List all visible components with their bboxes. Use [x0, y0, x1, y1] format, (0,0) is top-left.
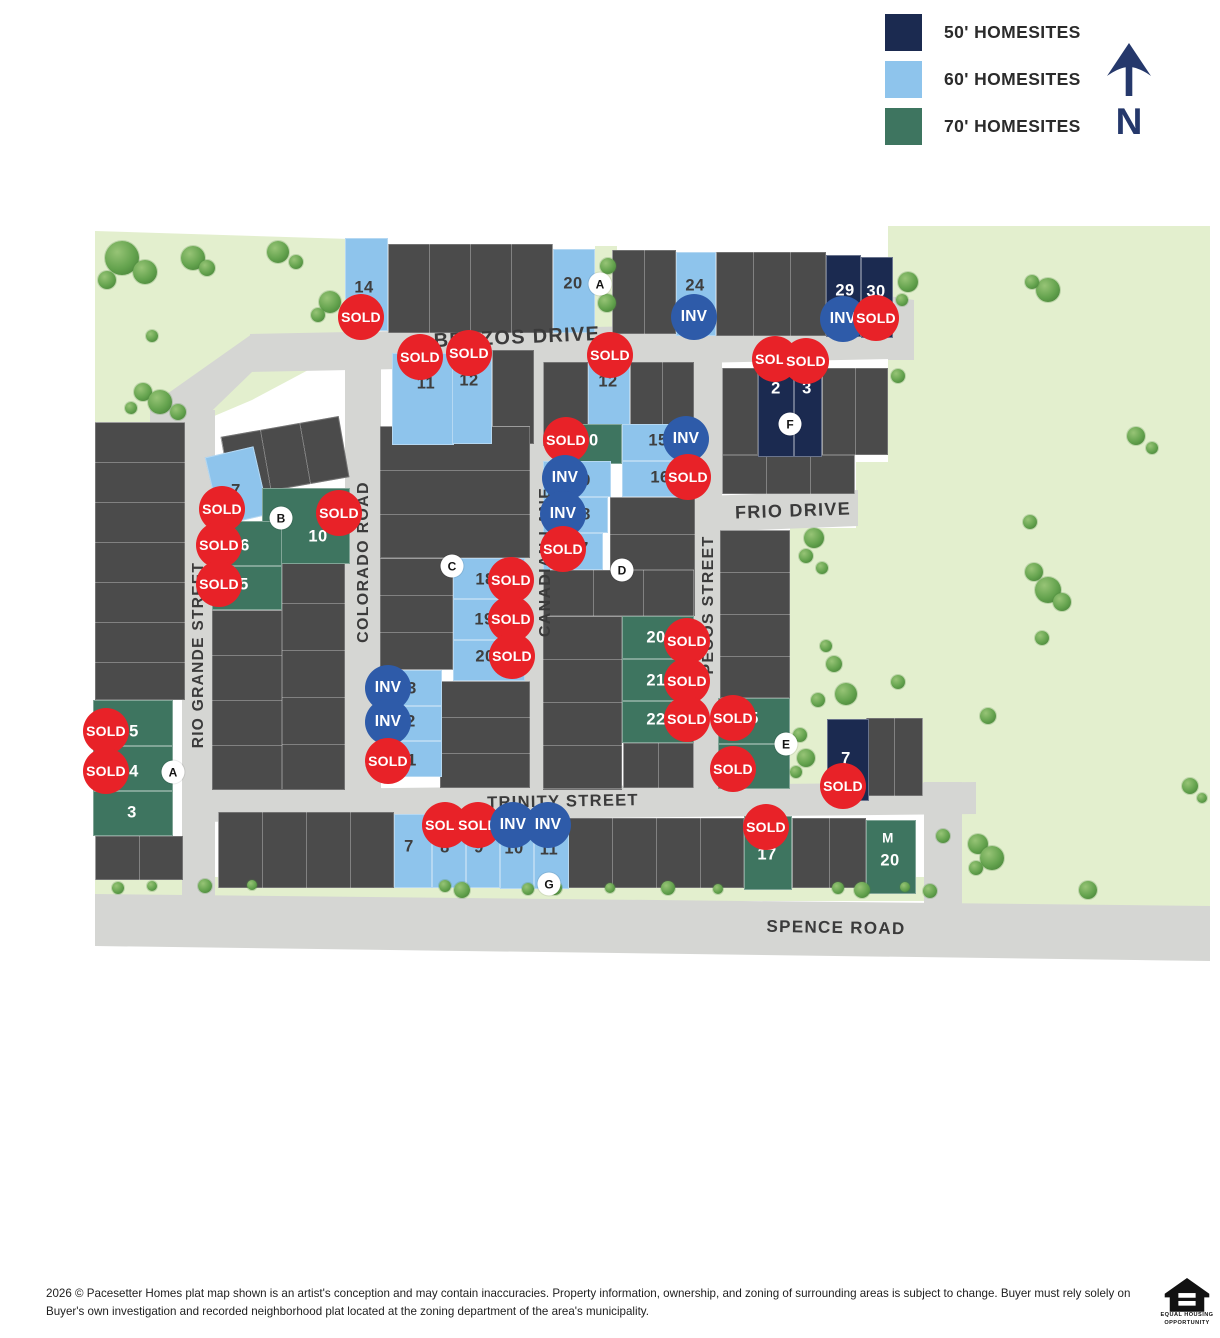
compass: N — [1100, 42, 1158, 138]
eho-text-line-2: OPPORTUNITY — [1158, 1320, 1216, 1328]
lot-block — [722, 455, 855, 494]
tree-icon — [891, 675, 905, 689]
tree-icon — [936, 829, 950, 843]
eho-text-line-1: EQUAL HOUSING — [1158, 1312, 1216, 1320]
equal-housing-house-icon — [1164, 1277, 1210, 1312]
map-marker-F: F — [779, 413, 802, 436]
sold-badge: SOLD — [83, 748, 129, 794]
tree-icon — [980, 708, 996, 724]
lot-number: 21 — [646, 672, 665, 691]
lot-block — [716, 252, 826, 336]
inv-badge: INV — [671, 294, 717, 340]
legend-label-50: 50' HOMESITES — [944, 22, 1081, 43]
sold-badge: SOLD — [316, 490, 362, 536]
north-arrow-icon — [1103, 42, 1155, 98]
lot-number: 20 — [563, 275, 582, 294]
tree-icon — [790, 766, 802, 778]
compass-n-label: N — [1100, 105, 1158, 138]
tree-icon — [891, 369, 905, 383]
lot-block — [792, 818, 866, 888]
lot-block — [720, 530, 790, 698]
legend: 50' HOMESITES 60' HOMESITES 70' HOMESITE… — [885, 14, 1081, 155]
tree-icon — [820, 640, 832, 652]
legend-item-60: 60' HOMESITES — [885, 61, 1081, 98]
lot-model-label: M — [882, 831, 894, 846]
lot-block — [822, 368, 888, 455]
lot-block — [282, 556, 345, 790]
sold-badge: SOLD — [338, 294, 384, 340]
sold-badge: SOLD — [489, 633, 535, 679]
lot-block — [440, 681, 530, 788]
sold-badge: SOLD — [664, 696, 710, 742]
sold-badge: SOLD — [196, 561, 242, 607]
tree-icon — [170, 404, 186, 420]
sold-badge: SOLD — [665, 454, 711, 500]
lot-block — [722, 368, 758, 455]
legend-label-60: 60' HOMESITES — [944, 69, 1081, 90]
lot-block — [388, 244, 553, 333]
site-map: BRAZOS DRIVE FRIO DRIVE TRINITY STREET S… — [0, 0, 1220, 1338]
tree-icon — [713, 884, 723, 894]
lot-block — [623, 743, 694, 788]
plat-map-page: 50' HOMESITES 60' HOMESITES 70' HOMESITE… — [0, 0, 1220, 1338]
tree-icon — [1023, 515, 1037, 529]
lot-number: 5 — [129, 723, 139, 742]
lot-block — [95, 422, 185, 700]
legend-swatch-70-icon — [885, 108, 922, 145]
disclaimer-line-2: Buyer's own investigation and recorded n… — [46, 1303, 1174, 1321]
tree-icon — [854, 882, 870, 898]
equal-housing-logo: EQUAL HOUSING OPPORTUNITY — [1158, 1277, 1216, 1327]
tree-icon — [896, 294, 908, 306]
tree-icon — [923, 884, 937, 898]
sold-badge: SOLD — [446, 330, 492, 376]
lot-block — [866, 718, 923, 796]
tree-icon — [454, 882, 470, 898]
tree-icon — [147, 881, 157, 891]
sold-badge: SOLD — [783, 338, 829, 384]
legend-item-70: 70' HOMESITES — [885, 108, 1081, 145]
sold-badge: SOLD — [820, 763, 866, 809]
tree-icon — [980, 846, 1004, 870]
lot-block — [568, 818, 744, 888]
lot-block — [212, 610, 282, 790]
tree-icon — [267, 241, 289, 263]
tree-icon — [311, 308, 325, 322]
lot-number: 3 — [127, 804, 137, 823]
inv-badge: INV — [525, 802, 571, 848]
tree-icon — [1036, 278, 1060, 302]
lot-block — [218, 812, 394, 888]
sold-badge: SOLD — [743, 804, 789, 850]
tree-icon — [289, 255, 303, 269]
tree-icon — [1197, 793, 1207, 803]
sold-badge: SOLD — [853, 295, 899, 341]
street-label-frio-drive: FRIO DRIVE — [735, 498, 852, 523]
tree-icon — [247, 880, 257, 890]
legend-label-70: 70' HOMESITES — [944, 116, 1081, 137]
tree-icon — [133, 260, 157, 284]
tree-icon — [439, 880, 451, 892]
map-marker-A: A — [162, 761, 185, 784]
tree-icon — [969, 861, 983, 875]
map-marker-E: E — [775, 733, 798, 756]
map-marker-C: C — [441, 555, 464, 578]
tree-icon — [146, 330, 158, 342]
tree-icon — [112, 882, 124, 894]
disclaimer: 2026 © Pacesetter Homes plat map shown i… — [46, 1285, 1174, 1321]
sold-badge: SOLD — [365, 738, 411, 784]
tree-icon — [1025, 275, 1039, 289]
tree-icon — [600, 258, 616, 274]
tree-icon — [1079, 881, 1097, 899]
lot-number: 2 — [771, 380, 781, 399]
map-marker-D: D — [611, 559, 634, 582]
lot-block — [612, 250, 676, 334]
lot-number: 20 — [646, 629, 665, 648]
sold-badge: SOLD — [710, 746, 756, 792]
sold-badge: SOLD — [587, 332, 633, 378]
tree-icon — [605, 883, 615, 893]
tree-icon — [816, 562, 828, 574]
lot-block — [95, 836, 183, 880]
map-marker-A: A — [589, 273, 612, 296]
tree-icon — [799, 549, 813, 563]
tree-icon — [125, 402, 137, 414]
tree-icon — [522, 883, 534, 895]
tree-icon — [804, 528, 824, 548]
lot-block — [380, 426, 530, 558]
lot-number: 7 — [404, 838, 414, 857]
tree-icon — [598, 294, 616, 312]
sold-badge: SOLD — [710, 695, 756, 741]
tree-icon — [898, 272, 918, 292]
tree-icon — [98, 271, 116, 289]
tree-icon — [900, 882, 910, 892]
tree-icon — [835, 683, 857, 705]
tree-icon — [1146, 442, 1158, 454]
legend-item-50: 50' HOMESITES — [885, 14, 1081, 51]
tree-icon — [826, 656, 842, 672]
lot-block — [380, 558, 453, 670]
lot-block — [543, 616, 622, 790]
legend-swatch-60-icon — [885, 61, 922, 98]
tree-icon — [1182, 778, 1198, 794]
disclaimer-line-1: 2026 © Pacesetter Homes plat map shown i… — [46, 1285, 1174, 1303]
tree-icon — [1127, 427, 1145, 445]
tree-icon — [661, 881, 675, 895]
tree-icon — [811, 693, 825, 707]
street-label-spence-road: SPENCE ROAD — [766, 917, 905, 939]
lot-number: 20 — [880, 852, 899, 871]
tree-icon — [198, 879, 212, 893]
tree-icon — [832, 882, 844, 894]
lot-number: 24 — [685, 277, 704, 296]
map-marker-G: G — [538, 873, 561, 896]
tree-icon — [797, 749, 815, 767]
legend-swatch-50-icon — [885, 14, 922, 51]
tree-icon — [199, 260, 215, 276]
lot-number: 22 — [646, 711, 665, 730]
tree-icon — [1035, 631, 1049, 645]
tree-icon — [148, 390, 172, 414]
map-marker-B: B — [270, 507, 293, 530]
sold-badge: SOLD — [397, 334, 443, 380]
lot-number: 4 — [129, 763, 139, 782]
tree-icon — [1053, 593, 1071, 611]
sold-badge: SOLD — [540, 526, 586, 572]
